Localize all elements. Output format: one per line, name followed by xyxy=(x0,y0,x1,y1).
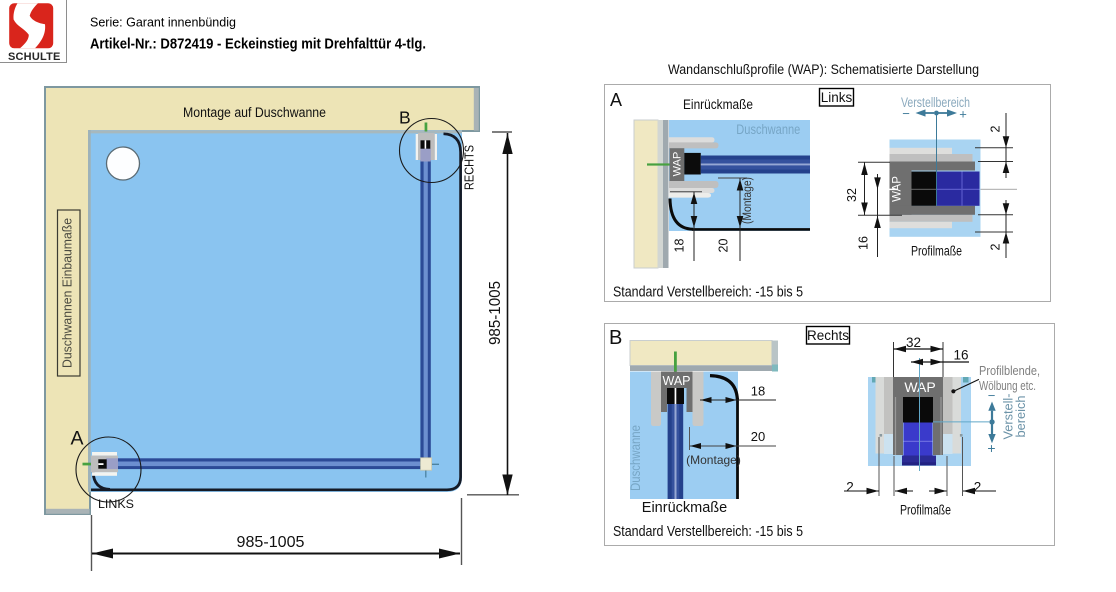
svg-text:Wandanschlußprofile (WAP): Sch: Wandanschlußprofile (WAP): Schematisiert… xyxy=(668,62,979,77)
svg-text:WAP: WAP xyxy=(662,374,690,388)
svg-text:(Montage): (Montage) xyxy=(742,177,754,224)
svg-text:B: B xyxy=(399,107,411,127)
svg-text:B: B xyxy=(609,327,622,349)
svg-text:2: 2 xyxy=(989,125,1003,132)
svg-text:Standard Verstellbereich: -15: Standard Verstellbereich: -15 bis 5 xyxy=(613,285,803,301)
svg-text:20: 20 xyxy=(751,429,765,444)
svg-text:A: A xyxy=(71,428,84,450)
svg-text:SCHULTE: SCHULTE xyxy=(8,51,61,63)
svg-text:Einrückmaße: Einrückmaße xyxy=(642,500,727,516)
svg-text:Standard Verstellbereich: -15: Standard Verstellbereich: -15 bis 5 xyxy=(613,524,803,540)
svg-text:+: + xyxy=(987,440,995,456)
svg-text:Rechts: Rechts xyxy=(807,328,849,343)
svg-text:16: 16 xyxy=(857,236,871,250)
svg-text:A: A xyxy=(610,90,622,110)
svg-text:Duschwannen Einbaumaße: Duschwannen Einbaumaße xyxy=(61,218,75,368)
svg-text:32: 32 xyxy=(845,188,859,202)
svg-text:WAP: WAP xyxy=(672,152,684,177)
svg-text:985-1005: 985-1005 xyxy=(487,281,504,345)
svg-text:20: 20 xyxy=(717,239,731,253)
svg-text:LINKS: LINKS xyxy=(98,497,134,511)
svg-text:Einrückmaße: Einrückmaße xyxy=(683,97,753,112)
svg-text:(Montage): (Montage) xyxy=(686,453,741,467)
svg-text:bereich: bereich xyxy=(1013,396,1028,438)
svg-text:Profilblende,: Profilblende, xyxy=(979,363,1040,378)
svg-text:Montage auf Duschwanne: Montage auf Duschwanne xyxy=(183,105,326,120)
svg-text:2: 2 xyxy=(846,480,854,495)
svg-text:2: 2 xyxy=(974,480,982,495)
svg-text:RECHTS: RECHTS xyxy=(463,145,477,190)
svg-text:−: − xyxy=(902,106,910,121)
svg-text:985-1005: 985-1005 xyxy=(237,534,305,551)
svg-text:Profilmaße: Profilmaße xyxy=(911,244,962,259)
svg-text:−: − xyxy=(988,388,996,403)
svg-text:Serie: Garant innenbündig: Serie: Garant innenbündig xyxy=(90,16,236,30)
svg-text:+: + xyxy=(959,107,967,122)
svg-text:Links: Links xyxy=(821,90,853,105)
svg-text:18: 18 xyxy=(751,384,765,399)
svg-text:Duschwanne: Duschwanne xyxy=(628,425,643,491)
svg-text:32: 32 xyxy=(906,335,921,350)
svg-text:2: 2 xyxy=(989,243,1003,250)
svg-text:Duschwanne: Duschwanne xyxy=(736,122,800,137)
svg-text:Artikel-Nr.: D872419 - Eckeins: Artikel-Nr.: D872419 - Eckeinstieg mit D… xyxy=(90,36,426,53)
svg-text:18: 18 xyxy=(673,239,687,253)
svg-text:Profilmaße: Profilmaße xyxy=(900,502,951,518)
svg-text:16: 16 xyxy=(953,348,968,363)
